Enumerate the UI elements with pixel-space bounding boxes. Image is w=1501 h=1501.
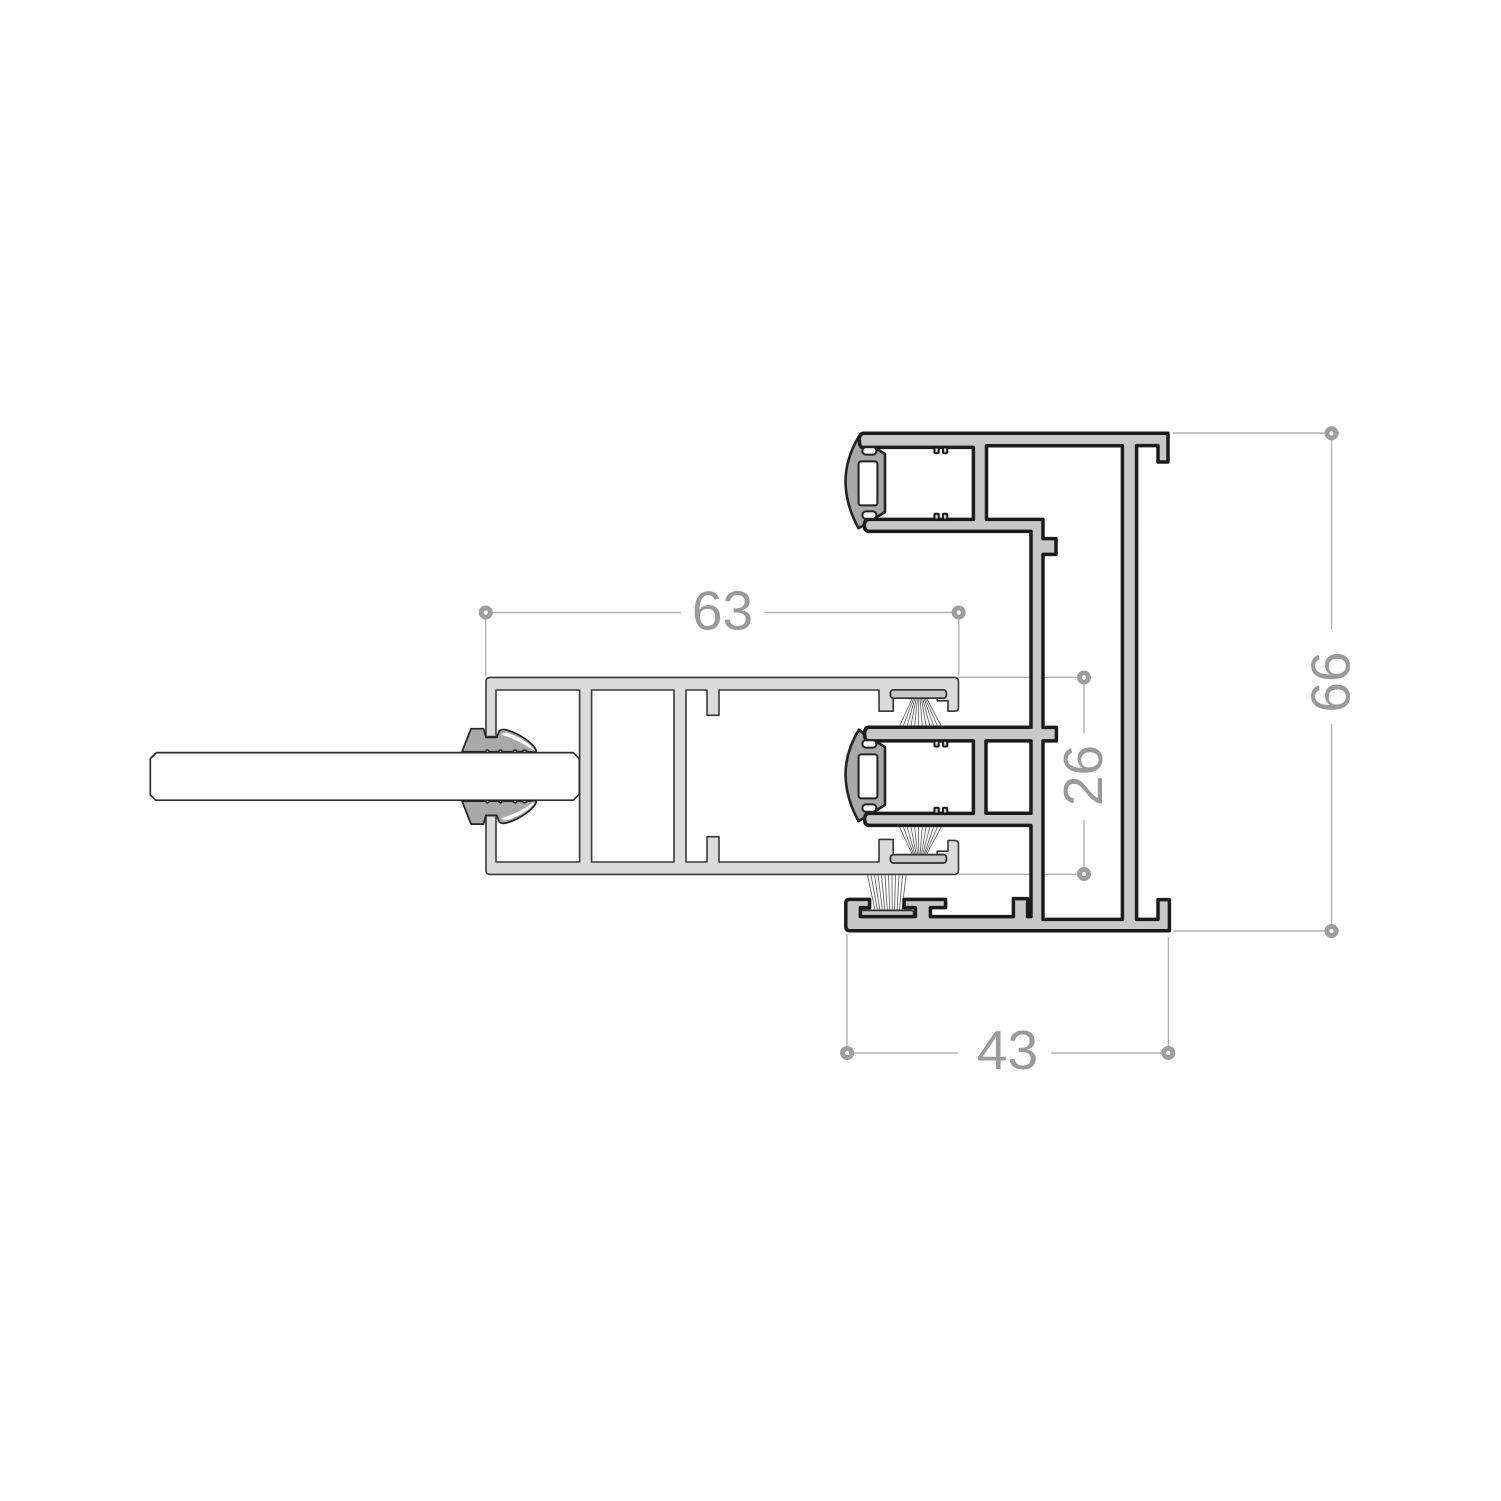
svg-text:66: 66 bbox=[1300, 651, 1362, 712]
svg-text:26: 26 bbox=[1052, 745, 1114, 806]
svg-text:43: 43 bbox=[977, 1019, 1038, 1081]
svg-text:63: 63 bbox=[692, 580, 753, 642]
